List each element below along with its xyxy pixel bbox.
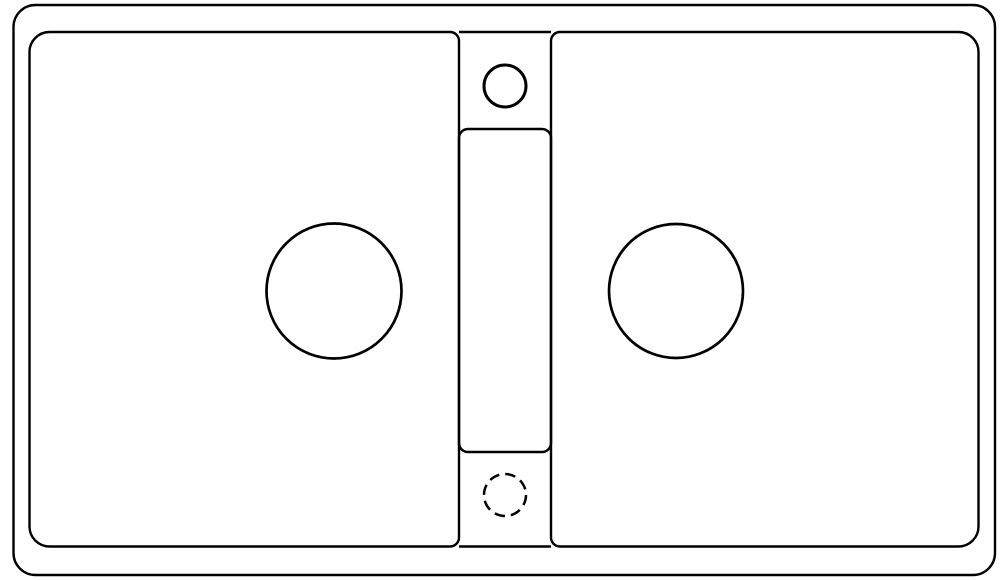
outer-rim: [14, 5, 996, 575]
right-drain-hole: [609, 224, 743, 358]
sink-drawing-svg: [0, 0, 1000, 581]
center-divider-panel: [459, 129, 551, 452]
left-drain-hole: [267, 224, 402, 359]
faucet-hole: [484, 65, 526, 107]
sink-top-view-drawing: [0, 0, 1000, 581]
right-basin: [551, 32, 979, 547]
left-basin: [30, 32, 460, 547]
knockout-hole-dashed: [484, 474, 526, 516]
